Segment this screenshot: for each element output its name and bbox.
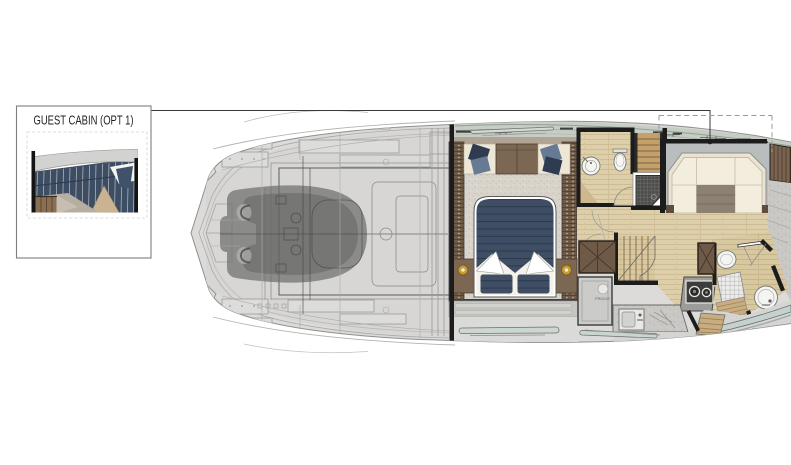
svg-text:GUEST CABIN (OPT 1): GUEST CABIN (OPT 1): [34, 113, 134, 128]
svg-text:FRIDGE: FRIDGE: [595, 296, 610, 301]
